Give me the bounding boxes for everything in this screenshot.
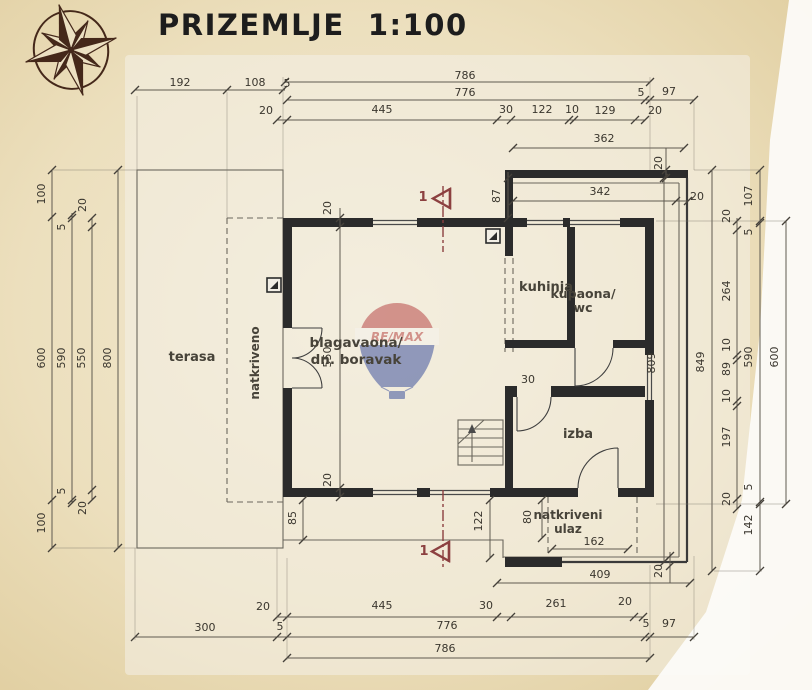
dim-label: 20 bbox=[321, 201, 334, 215]
chimney-icon bbox=[267, 278, 281, 292]
dim-label: 20 bbox=[648, 104, 662, 117]
dim-label: 122 bbox=[472, 511, 485, 532]
dim-label: 100 bbox=[35, 184, 48, 205]
floor-plan-svg: RE/MAX 786776597192108520445301221012920… bbox=[0, 0, 812, 690]
dim-label: 10 bbox=[720, 389, 733, 403]
dim-label: 5 bbox=[55, 224, 68, 231]
dim-label: 30 bbox=[479, 599, 493, 612]
chimney-icon bbox=[486, 229, 500, 243]
dim-label: 20 bbox=[720, 209, 733, 223]
room-label: blagavaona/ bbox=[309, 335, 402, 351]
room-label: ulaz bbox=[554, 522, 582, 536]
dim-label: 409 bbox=[590, 568, 611, 581]
dim-label: 20 bbox=[321, 473, 334, 487]
dim-label: 800 bbox=[101, 348, 114, 369]
dim-label: 600 bbox=[768, 347, 781, 368]
dim-label: 264 bbox=[720, 281, 733, 302]
dim-label: 786 bbox=[435, 642, 456, 655]
dim-label: 342 bbox=[590, 185, 611, 198]
dim-label: 162 bbox=[584, 535, 605, 548]
dim-label: 261 bbox=[546, 597, 567, 610]
dim-label: 590 bbox=[55, 348, 68, 369]
dim-label: 5 bbox=[638, 86, 645, 99]
room-label: dn. boravak bbox=[311, 352, 403, 368]
dim-label: 20 bbox=[690, 190, 704, 203]
dim-label: 89 bbox=[720, 362, 733, 376]
dim-label: 20 bbox=[618, 595, 632, 608]
dim-label: 590 bbox=[742, 347, 755, 368]
dim-label: 5 bbox=[742, 484, 755, 491]
room-label: terasa bbox=[169, 350, 216, 365]
room-label: wc bbox=[574, 300, 593, 315]
dim-label: 108 bbox=[245, 76, 266, 89]
dim-label: 20 bbox=[256, 600, 270, 613]
entrance-step bbox=[505, 557, 562, 567]
room-label: kupaona/ bbox=[550, 286, 616, 301]
dim-label: 129 bbox=[595, 104, 616, 117]
dim-label: 10 bbox=[565, 103, 579, 116]
page-title: PRIZEMLJE 1:100 bbox=[158, 8, 468, 42]
dim-label: 100 bbox=[35, 513, 48, 534]
dim-label: 20 bbox=[720, 492, 733, 506]
section-marker-label: 1 bbox=[419, 544, 428, 559]
dim-label: 362 bbox=[594, 132, 615, 145]
dim-label: 786 bbox=[455, 69, 476, 82]
room-label: natkriveni bbox=[533, 508, 602, 522]
dim-label: 107 bbox=[742, 186, 755, 207]
dim-label: 10 bbox=[720, 338, 733, 352]
dim-label: 5 bbox=[55, 488, 68, 495]
room-label: natkriveno bbox=[248, 326, 262, 399]
dim-label: 445 bbox=[372, 599, 393, 612]
dim-label: 445 bbox=[372, 103, 393, 116]
dim-label: 776 bbox=[437, 619, 458, 632]
dim-label: 5 bbox=[643, 617, 650, 630]
dim-label: 85 bbox=[286, 511, 299, 525]
dim-label: 849 bbox=[694, 352, 707, 373]
dim-label: 776 bbox=[455, 86, 476, 99]
dim-label: 80 bbox=[521, 510, 534, 524]
dim-label: 97 bbox=[662, 85, 676, 98]
dim-label: 97 bbox=[662, 617, 676, 630]
dim-label: 5 bbox=[742, 229, 755, 236]
dim-label: 20 bbox=[76, 501, 89, 515]
dim-label: 600 bbox=[35, 348, 48, 369]
dim-label: 300 bbox=[195, 621, 216, 634]
dim-label: 5 bbox=[277, 620, 284, 633]
dim-label: 197 bbox=[720, 427, 733, 448]
dim-label: 142 bbox=[742, 515, 755, 536]
dim-label: 122 bbox=[532, 103, 553, 116]
dim-label: 30 bbox=[499, 103, 513, 116]
scanned-floor-plan-page: RE/MAX 786776597192108520445301221012920… bbox=[0, 0, 812, 690]
dim-label: 20 bbox=[76, 198, 89, 212]
dim-label: 20 bbox=[652, 564, 665, 578]
dim-label: 20 bbox=[652, 156, 665, 170]
dim-label: 550 bbox=[75, 348, 88, 369]
dim-label: 192 bbox=[170, 76, 191, 89]
section-marker-label: 1 bbox=[418, 190, 427, 205]
dim-label: 87 bbox=[490, 189, 503, 203]
room-label: izba bbox=[563, 427, 593, 442]
dim-label: 30 bbox=[521, 373, 535, 386]
dim-label: 809 bbox=[645, 353, 658, 374]
dim-label: 20 bbox=[259, 104, 273, 117]
dim-label: 5 bbox=[284, 77, 291, 90]
